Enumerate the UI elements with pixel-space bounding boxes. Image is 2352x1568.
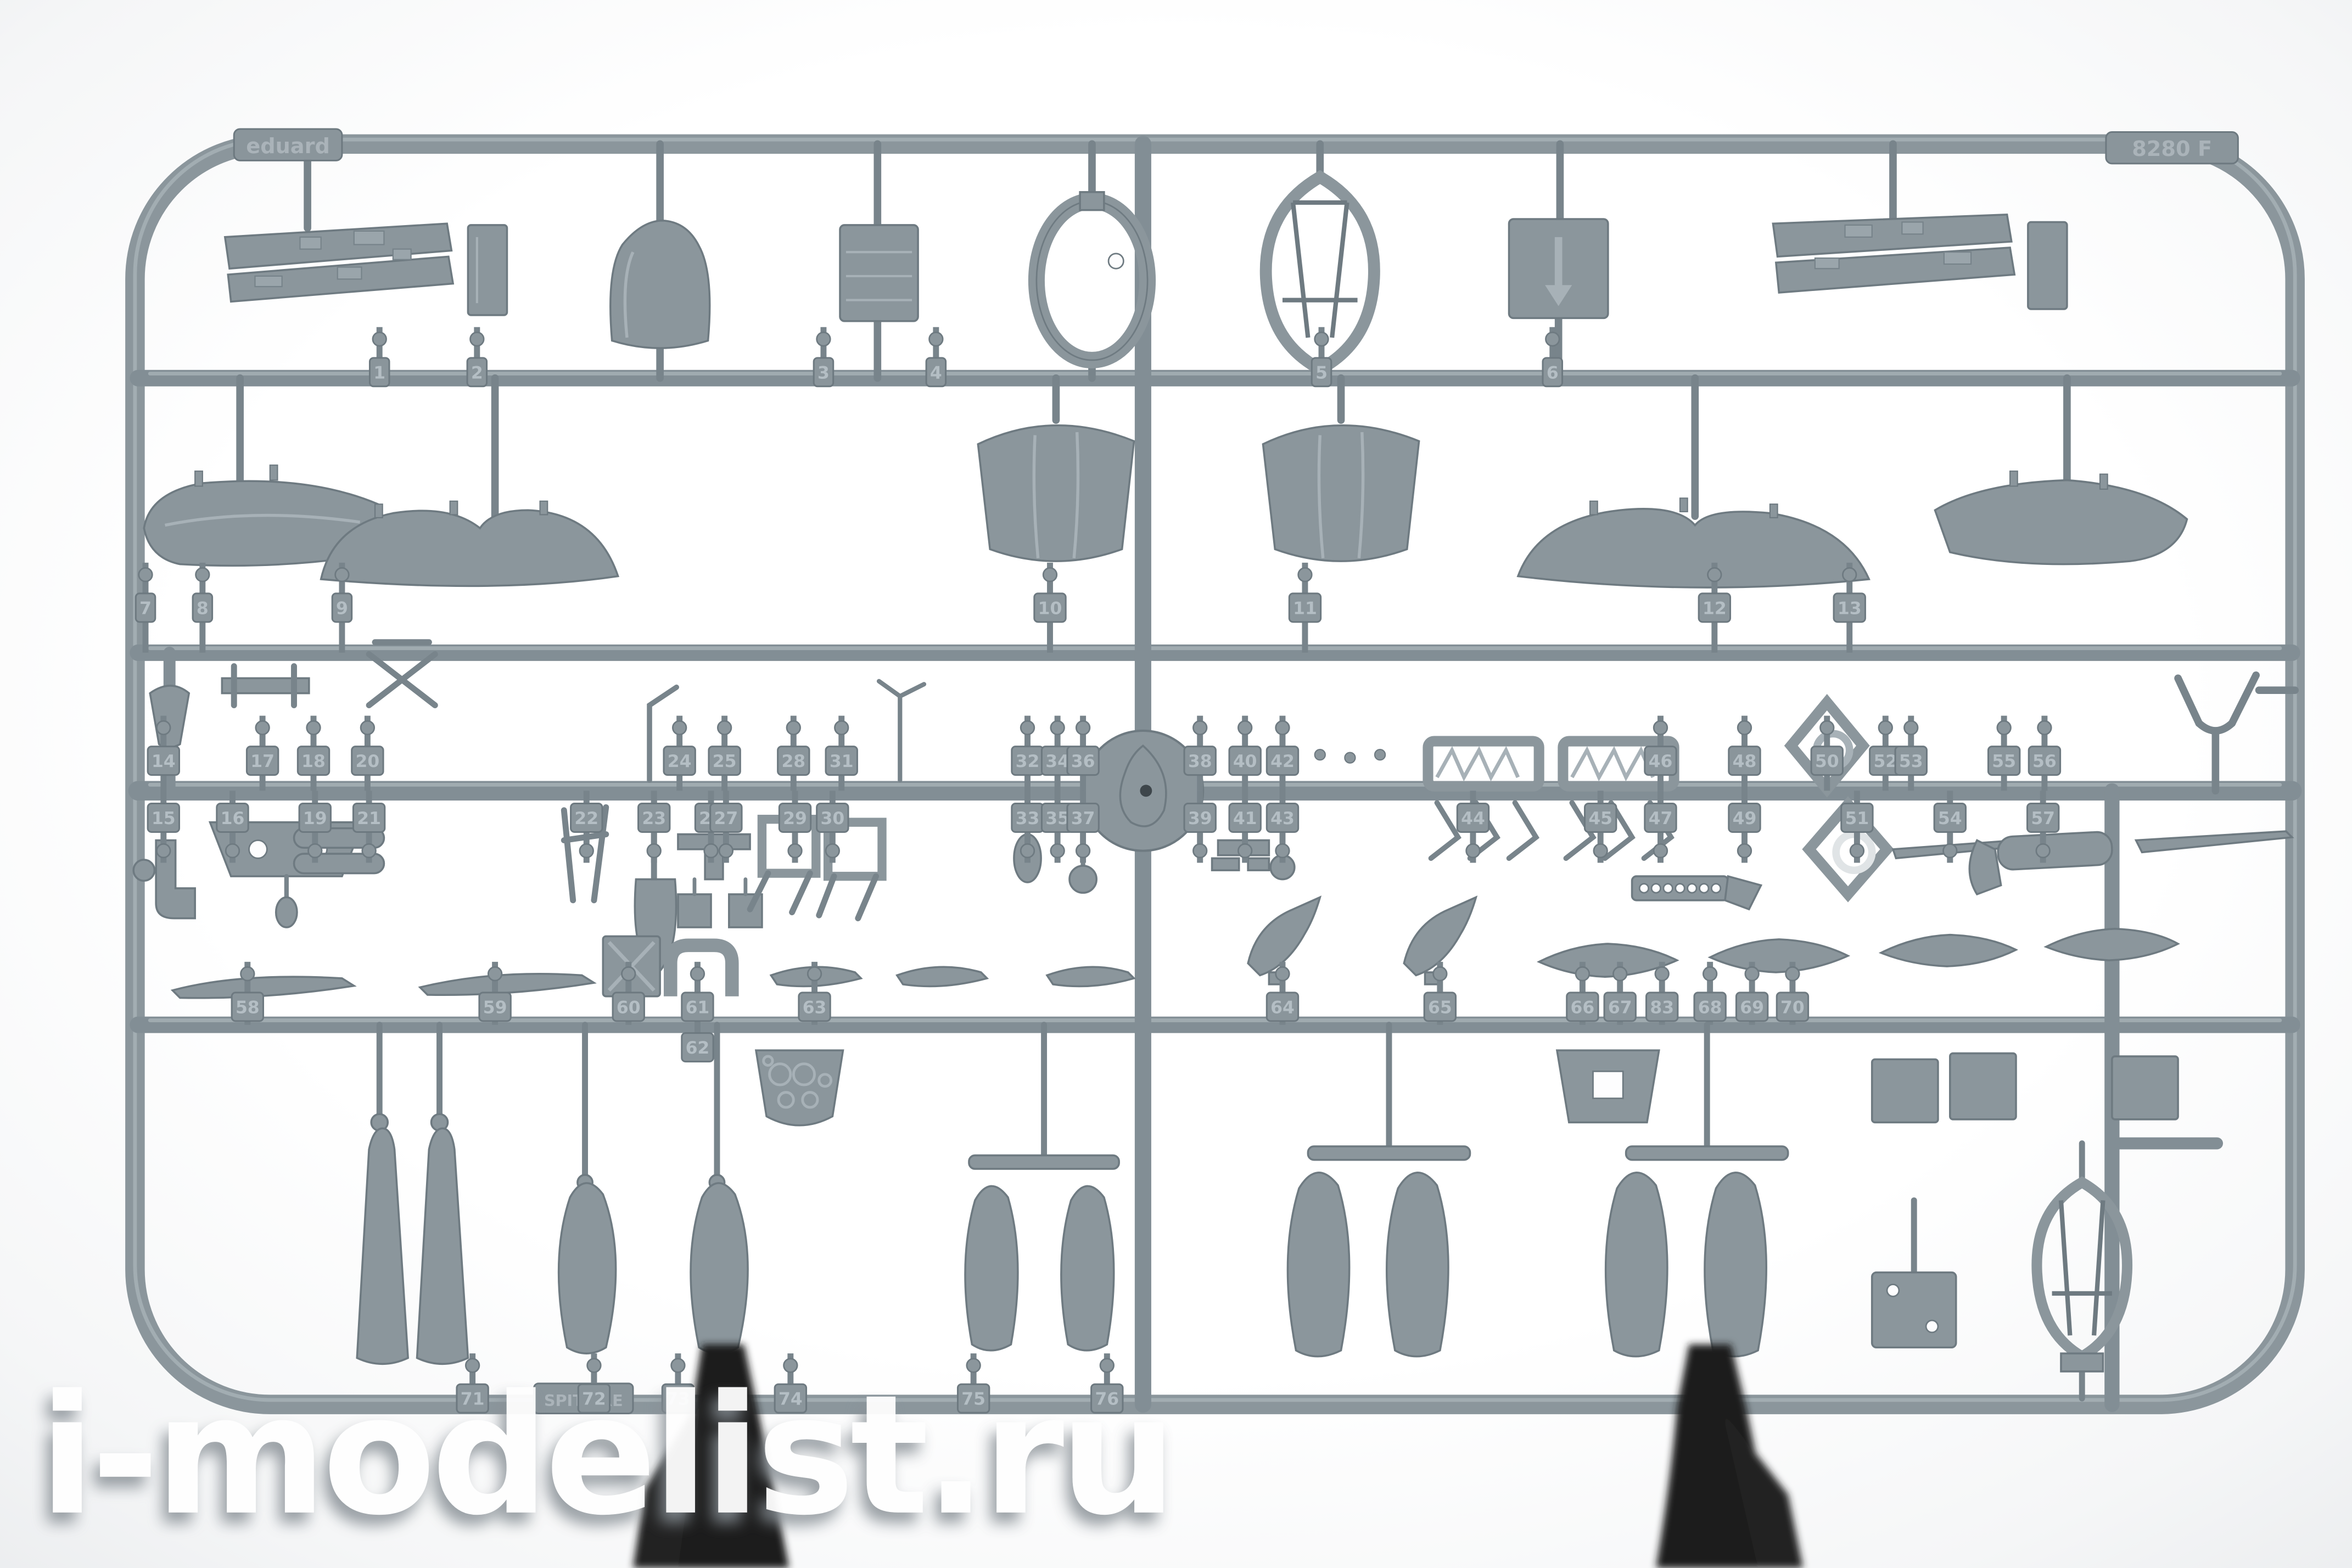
svg-text:2: 2 [471, 363, 483, 383]
svg-text:15: 15 [152, 809, 176, 828]
brand-tag-label: eduard [246, 134, 330, 159]
svg-text:65: 65 [1428, 998, 1452, 1017]
svg-text:5: 5 [1315, 363, 1328, 383]
part-cowl-top-left [978, 425, 1134, 561]
svg-text:28: 28 [781, 752, 805, 771]
svg-text:35: 35 [1045, 809, 1069, 828]
svg-text:11: 11 [1293, 598, 1317, 618]
svg-text:58: 58 [236, 998, 260, 1017]
watermark-text: i-modelist.ru [39, 1359, 1173, 1552]
svg-text:48: 48 [1733, 752, 1757, 771]
svg-text:43: 43 [1270, 809, 1295, 828]
svg-text:54: 54 [1938, 809, 1962, 828]
svg-text:30: 30 [820, 809, 844, 828]
part-gear-door-h [1705, 1173, 1766, 1357]
part-door-plate-a [1872, 1060, 1938, 1123]
part-bulkhead-small [840, 225, 918, 321]
svg-text:32: 32 [1016, 752, 1040, 771]
svg-text:66: 66 [1571, 998, 1595, 1017]
part-gear-door-a [559, 1183, 616, 1353]
svg-text:31: 31 [830, 752, 854, 771]
svg-text:16: 16 [221, 809, 245, 828]
part-cowl-top-right [1263, 425, 1419, 561]
part-instrument-panel [756, 1050, 843, 1125]
svg-text:36: 36 [1071, 752, 1095, 771]
svg-text:49: 49 [1733, 809, 1757, 828]
svg-text:55: 55 [1992, 752, 2016, 771]
svg-text:41: 41 [1233, 809, 1257, 828]
svg-text:8: 8 [197, 598, 209, 618]
svg-text:9: 9 [336, 598, 348, 618]
svg-text:14: 14 [152, 752, 176, 771]
svg-text:60: 60 [617, 998, 641, 1017]
svg-text:23: 23 [642, 809, 666, 828]
svg-text:56: 56 [2032, 752, 2057, 771]
part-wheel-small [1069, 866, 1096, 893]
svg-text:67: 67 [1608, 998, 1632, 1017]
svg-text:20: 20 [356, 752, 380, 771]
svg-text:7: 7 [139, 598, 152, 618]
svg-text:83: 83 [1650, 998, 1674, 1017]
svg-text:10: 10 [1038, 598, 1062, 618]
part-gear-door-b [691, 1183, 748, 1353]
svg-text:51: 51 [1845, 809, 1869, 828]
part-gear-door-d [1061, 1186, 1114, 1350]
svg-text:21: 21 [357, 809, 381, 828]
svg-text:62: 62 [686, 1038, 710, 1058]
part-gear-door-f [1387, 1173, 1448, 1357]
svg-text:6: 6 [1547, 363, 1559, 383]
svg-text:50: 50 [1815, 752, 1839, 771]
part-door-plate-c [2112, 1056, 2178, 1119]
svg-text:18: 18 [301, 752, 326, 771]
svg-text:37: 37 [1071, 809, 1095, 828]
svg-text:3: 3 [817, 363, 830, 383]
svg-text:44: 44 [1461, 809, 1485, 828]
svg-text:34: 34 [1045, 752, 1069, 771]
frame-hole [1108, 254, 1123, 268]
kit-code-label: 8280 F [2132, 137, 2212, 161]
svg-text:24: 24 [668, 752, 692, 771]
part-plate-two-holes [1872, 1273, 1956, 1348]
svg-text:53: 53 [1899, 752, 1923, 771]
svg-text:1: 1 [373, 363, 385, 383]
svg-text:57: 57 [2031, 809, 2055, 828]
svg-text:13: 13 [1838, 598, 1862, 618]
svg-text:61: 61 [686, 998, 710, 1017]
svg-text:29: 29 [783, 809, 807, 828]
svg-text:47: 47 [1649, 809, 1673, 828]
svg-text:45: 45 [1588, 809, 1612, 828]
svg-text:33: 33 [1016, 809, 1040, 828]
part-panel-small [468, 225, 507, 315]
svg-text:27: 27 [714, 809, 738, 828]
svg-text:70: 70 [1780, 998, 1805, 1017]
svg-text:63: 63 [803, 998, 827, 1017]
svg-text:12: 12 [1703, 598, 1727, 618]
sprue-photo: eduard 8280 F SPITFIRE 12345678910111213… [0, 0, 2352, 1568]
svg-text:42: 42 [1270, 752, 1295, 771]
svg-text:25: 25 [713, 752, 737, 771]
svg-text:46: 46 [1649, 752, 1673, 771]
part-exhaust-pipe [1997, 831, 2113, 870]
part-cowling-double-left [321, 510, 618, 586]
svg-text:4: 4 [930, 363, 942, 383]
part-door-plate-b [1950, 1054, 2016, 1119]
svg-text:22: 22 [574, 809, 598, 828]
part-gear-door-g [1606, 1173, 1667, 1357]
hub-hole [1140, 785, 1152, 797]
svg-text:39: 39 [1188, 809, 1212, 828]
svg-text:17: 17 [250, 752, 275, 771]
svg-text:52: 52 [1873, 752, 1897, 771]
svg-text:64: 64 [1270, 998, 1295, 1017]
svg-text:59: 59 [483, 998, 507, 1017]
svg-text:40: 40 [1233, 752, 1257, 771]
svg-text:19: 19 [303, 809, 327, 828]
svg-text:68: 68 [1698, 998, 1722, 1017]
svg-text:38: 38 [1188, 752, 1212, 771]
part-gear-door-c [965, 1186, 1018, 1350]
svg-text:69: 69 [1740, 998, 1764, 1017]
part-gear-door-e [1287, 1173, 1349, 1357]
